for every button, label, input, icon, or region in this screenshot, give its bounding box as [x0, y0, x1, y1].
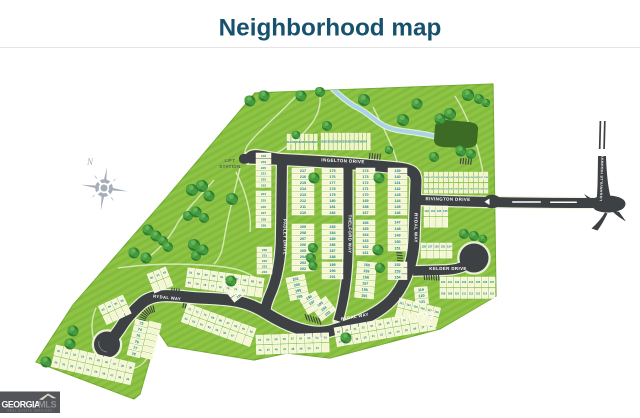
- svg-text:179: 179: [329, 193, 335, 197]
- svg-text:110: 110: [455, 292, 460, 296]
- svg-text:184: 184: [329, 231, 336, 235]
- svg-text:169: 169: [362, 199, 368, 203]
- svg-text:163: 163: [362, 239, 368, 243]
- svg-text:104: 104: [469, 280, 474, 284]
- svg-text:234: 234: [262, 270, 267, 274]
- svg-text:102: 102: [455, 280, 460, 284]
- svg-text:219: 219: [261, 160, 266, 164]
- svg-text:113: 113: [476, 292, 481, 296]
- svg-text:207: 207: [300, 237, 306, 241]
- svg-text:167: 167: [362, 211, 368, 215]
- svg-text:210: 210: [300, 211, 306, 215]
- svg-text:103: 103: [462, 280, 467, 284]
- svg-text:170: 170: [362, 193, 368, 197]
- svg-text:188: 188: [329, 255, 335, 259]
- svg-text:187: 187: [329, 249, 335, 253]
- svg-text:134: 134: [431, 209, 436, 213]
- svg-text:223: 223: [261, 184, 266, 188]
- svg-text:185: 185: [329, 237, 335, 241]
- svg-text:211: 211: [300, 205, 306, 209]
- svg-text:206: 206: [300, 243, 306, 247]
- svg-text:172: 172: [362, 181, 368, 185]
- svg-text:209: 209: [300, 225, 306, 229]
- svg-text:140: 140: [394, 175, 400, 179]
- svg-text:228: 228: [261, 217, 266, 221]
- svg-text:216: 216: [300, 175, 306, 179]
- svg-text:180: 180: [329, 199, 335, 203]
- svg-text:124: 124: [447, 245, 452, 249]
- svg-text:154: 154: [394, 276, 401, 280]
- svg-text:Neighborhood map: Neighborhood map: [219, 15, 442, 42]
- svg-text:150: 150: [394, 240, 400, 244]
- svg-text:RYDAL WAY: RYDAL WAY: [414, 213, 419, 243]
- svg-text:182: 182: [329, 211, 335, 215]
- svg-text:135: 135: [437, 209, 442, 213]
- svg-text:139: 139: [394, 169, 400, 173]
- svg-text:100: 100: [441, 280, 446, 284]
- svg-text:159: 159: [363, 269, 369, 274]
- svg-text:126: 126: [434, 245, 439, 249]
- svg-text:PADLEY DRIVE: PADLEY DRIVE: [283, 219, 288, 255]
- svg-text:155: 155: [361, 294, 367, 299]
- svg-text:177: 177: [329, 181, 335, 185]
- svg-text:146: 146: [394, 211, 400, 215]
- svg-text:190: 190: [329, 269, 335, 273]
- svg-text:240: 240: [363, 141, 368, 144]
- svg-text:RIVINGTON DRIVE: RIVINGTON DRIVE: [426, 196, 471, 202]
- svg-text:214: 214: [300, 187, 307, 191]
- svg-text:119: 119: [418, 288, 424, 293]
- svg-text:164: 164: [362, 233, 369, 237]
- svg-text:LIFT: LIFT: [225, 158, 236, 163]
- svg-text:227: 227: [261, 211, 266, 215]
- svg-text:101: 101: [448, 280, 453, 284]
- svg-text:115: 115: [490, 292, 495, 296]
- svg-text:120: 120: [418, 294, 424, 299]
- svg-text:161: 161: [362, 251, 368, 255]
- svg-text:247: 247: [314, 141, 319, 144]
- svg-text:224: 224: [261, 192, 266, 196]
- svg-text:114: 114: [483, 292, 488, 296]
- svg-text:112: 112: [469, 292, 474, 296]
- svg-text:226: 226: [261, 205, 266, 209]
- svg-text:143: 143: [394, 193, 400, 197]
- svg-text:162: 162: [362, 245, 368, 249]
- svg-text:202: 202: [300, 267, 306, 271]
- svg-text:183: 183: [329, 225, 335, 229]
- svg-text:149: 149: [394, 234, 400, 238]
- svg-text:145: 145: [394, 205, 400, 209]
- svg-text:158: 158: [363, 275, 369, 280]
- svg-text:213: 213: [300, 193, 306, 197]
- svg-text:176: 176: [329, 175, 335, 179]
- svg-text:STATION: STATION: [219, 164, 240, 169]
- svg-text:111: 111: [462, 292, 467, 296]
- svg-text:REAL ESTATE SERVICES: REAL ESTATE SERVICES: [8, 409, 53, 413]
- svg-text:156: 156: [361, 288, 367, 293]
- svg-text:GEORGIA: GEORGIA: [2, 400, 41, 410]
- svg-text:174: 174: [362, 169, 369, 173]
- svg-text:128: 128: [421, 245, 426, 249]
- svg-text:108: 108: [441, 292, 446, 296]
- svg-text:231: 231: [262, 253, 267, 257]
- svg-text:152: 152: [394, 263, 400, 267]
- svg-text:173: 173: [362, 175, 368, 179]
- svg-text:N: N: [86, 157, 94, 167]
- svg-text:233: 233: [262, 265, 267, 269]
- svg-text:168: 168: [362, 205, 368, 209]
- svg-text:109: 109: [448, 292, 453, 296]
- svg-text:157: 157: [362, 281, 368, 286]
- svg-text:175: 175: [329, 169, 335, 173]
- svg-text:178: 178: [329, 187, 335, 191]
- svg-text:105: 105: [476, 280, 481, 284]
- svg-text:144: 144: [394, 199, 401, 203]
- svg-text:217: 217: [300, 169, 306, 173]
- svg-text:THELFORD WAY: THELFORD WAY: [348, 215, 353, 254]
- svg-text:166: 166: [362, 221, 368, 225]
- svg-text:225: 225: [261, 199, 266, 203]
- svg-text:133: 133: [424, 209, 429, 213]
- svg-text:186: 186: [329, 243, 335, 247]
- svg-text:107: 107: [490, 280, 495, 284]
- svg-text:147: 147: [394, 220, 400, 224]
- svg-text:148: 148: [394, 227, 400, 231]
- svg-text:106: 106: [483, 280, 488, 284]
- svg-text:153: 153: [394, 269, 400, 273]
- svg-text:222: 222: [261, 178, 266, 182]
- svg-text:212: 212: [300, 199, 306, 203]
- svg-text:142: 142: [394, 187, 400, 191]
- svg-text:125: 125: [441, 245, 446, 249]
- svg-text:181: 181: [329, 205, 335, 209]
- svg-text:165: 165: [362, 227, 368, 231]
- svg-text:171: 171: [362, 187, 368, 191]
- svg-text:151: 151: [394, 247, 400, 251]
- svg-text:MLS: MLS: [38, 400, 56, 410]
- svg-text:189: 189: [329, 263, 335, 267]
- svg-text:218: 218: [261, 154, 266, 158]
- svg-text:230: 230: [262, 248, 267, 252]
- svg-text:127: 127: [428, 245, 433, 249]
- svg-text:208: 208: [300, 231, 306, 235]
- svg-text:191: 191: [329, 275, 335, 279]
- svg-text:232: 232: [262, 259, 267, 263]
- svg-text:203: 203: [300, 261, 306, 265]
- svg-text:KELDER DRIVE: KELDER DRIVE: [429, 266, 467, 271]
- svg-text:215: 215: [300, 181, 306, 185]
- svg-text:136: 136: [443, 209, 448, 213]
- svg-text:221: 221: [261, 172, 266, 176]
- svg-text:141: 141: [394, 181, 400, 185]
- svg-text:220: 220: [261, 166, 266, 170]
- svg-text:205: 205: [300, 249, 306, 253]
- svg-text:229: 229: [261, 224, 266, 228]
- svg-text:160: 160: [364, 263, 370, 268]
